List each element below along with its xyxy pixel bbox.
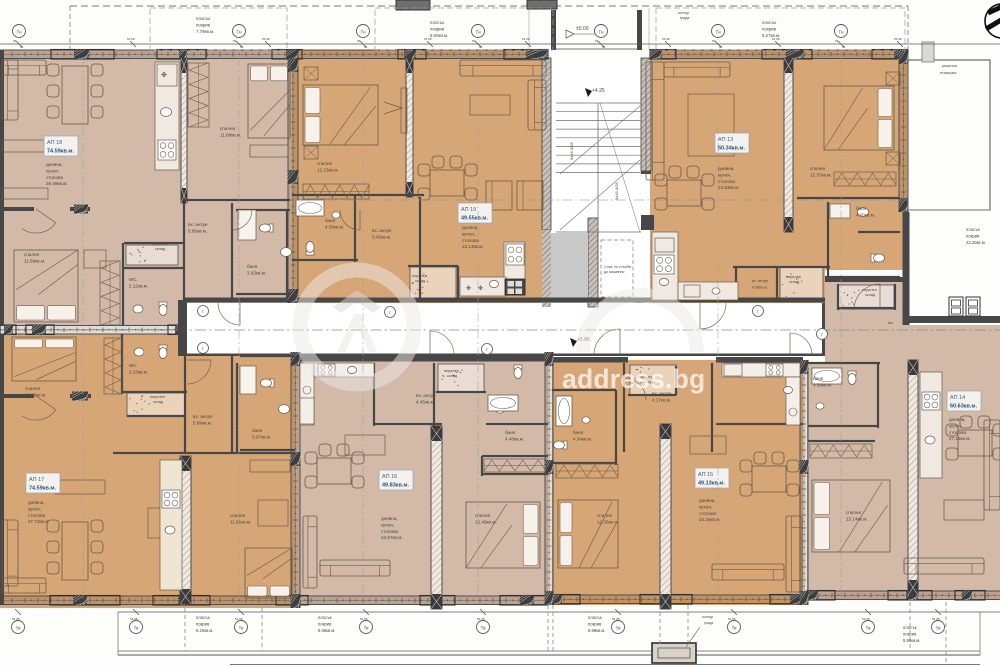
svg-text:склад: склад xyxy=(155,247,166,251)
svg-text:вх. антре: вх. антре xyxy=(372,228,392,233)
svg-text:53 98: 53 98 xyxy=(262,37,270,41)
svg-text:покрив: покрив xyxy=(430,26,445,31)
svg-text:столова: столова xyxy=(46,175,63,180)
svg-text:покрив: покрив xyxy=(588,621,602,626)
svg-text:вх. антре: вх. антре xyxy=(416,393,436,398)
svg-text:кухня,: кухня, xyxy=(699,504,712,509)
svg-text:дневна,: дневна, xyxy=(28,500,45,505)
svg-text:3.45кв.м.: 3.45кв.м. xyxy=(372,234,391,239)
svg-text:покрив: покрив xyxy=(196,621,210,626)
svg-text:✤: ✤ xyxy=(161,71,167,79)
svg-text:53 98: 53 98 xyxy=(424,37,432,41)
svg-text:Тн: Тн xyxy=(360,30,366,35)
svg-text:покрив: покрив xyxy=(762,26,777,31)
svg-text:11.56кв.м.: 11.56кв.м. xyxy=(25,392,46,397)
svg-text:24.93кв.м.: 24.93кв.м. xyxy=(718,185,740,190)
svg-text:баня: баня xyxy=(252,428,263,433)
svg-text:53 98: 53 98 xyxy=(127,37,135,41)
svg-text:53 98: 53 98 xyxy=(360,617,368,621)
svg-text:Тв: Тв xyxy=(936,626,941,631)
svg-text:Тв: Тв xyxy=(866,626,871,631)
svg-text:Тв: Тв xyxy=(239,626,244,631)
svg-text:53 98: 53 98 xyxy=(894,37,902,41)
svg-text:покрив: покрив xyxy=(318,621,332,626)
svg-text:49.83кв.м.: 49.83кв.м. xyxy=(382,483,409,489)
svg-text:плосък: плосък xyxy=(196,16,210,21)
svg-text:11.89кв.м.: 11.89кв.м. xyxy=(220,132,241,137)
svg-text:кухня,: кухня, xyxy=(46,168,59,173)
svg-text:града: града xyxy=(704,621,713,625)
svg-text:5.86кв.м.: 5.86кв.м. xyxy=(188,228,207,233)
svg-text:WC: WC xyxy=(129,277,137,282)
svg-text:Тв: Тв xyxy=(364,626,369,631)
svg-text:74.59кв.м.: 74.59кв.м. xyxy=(29,486,56,492)
svg-text:плосък: плосък xyxy=(196,615,210,620)
svg-text:дневна,: дневна, xyxy=(462,225,479,230)
svg-text:23.13кв.м.: 23.13кв.м. xyxy=(462,244,484,249)
svg-text:✤: ✤ xyxy=(478,285,483,292)
svg-text:АП 13: АП 13 xyxy=(718,137,733,143)
svg-text:склад: склад xyxy=(865,293,876,297)
svg-text:плосък: плосък xyxy=(430,20,444,25)
svg-text:4.36кв.м.: 4.36кв.м. xyxy=(752,285,768,289)
svg-text:9.00кв.м.: 9.00кв.м. xyxy=(430,33,448,38)
svg-text:перален: перален xyxy=(412,274,427,278)
svg-text:53 98: 53 98 xyxy=(612,617,620,621)
svg-text:перален: перален xyxy=(444,369,459,373)
svg-text:53 98: 53 98 xyxy=(235,617,243,621)
svg-text:Тв: Тв xyxy=(134,626,139,631)
svg-text:плосък: плосък xyxy=(318,615,332,620)
svg-text:перален: перален xyxy=(150,395,165,399)
svg-text:плосък: плосък xyxy=(762,20,776,25)
svg-text:кухня,: кухня, xyxy=(949,423,962,428)
svg-text:баня: баня xyxy=(813,376,824,381)
svg-text:перален: перален xyxy=(786,275,801,279)
svg-text:решетка: решетка xyxy=(942,64,958,68)
svg-text:дневна,: дневна, xyxy=(46,162,63,167)
svg-text:Тв: Тв xyxy=(16,626,21,631)
svg-text:wc: wc xyxy=(888,320,893,325)
svg-text:столова: столова xyxy=(28,513,45,518)
svg-text:столова: столова xyxy=(381,529,398,534)
svg-text:контур: контур xyxy=(678,11,689,15)
svg-text:склад: склад xyxy=(447,374,458,378)
svg-text:98: 98 xyxy=(602,45,606,49)
svg-text:Тн: Тн xyxy=(16,30,22,35)
svg-text:13.14кв.м.: 13.14кв.м. xyxy=(846,516,868,521)
svg-text:49.13кв.м.: 49.13кв.м. xyxy=(698,481,725,487)
svg-text:74.59кв.м.: 74.59кв.м. xyxy=(47,149,74,155)
svg-text:спалня: спалня xyxy=(24,252,40,257)
svg-text:АП 16: АП 16 xyxy=(382,474,397,480)
svg-text:6.25кв.м.: 6.25кв.м. xyxy=(196,628,213,633)
svg-text:24.57кв.м.: 24.57кв.м. xyxy=(381,535,403,540)
svg-text:98: 98 xyxy=(364,45,368,49)
svg-text:спалня: спалня xyxy=(25,386,41,391)
svg-text:столова: столова xyxy=(699,511,716,516)
svg-text:53: 53 xyxy=(357,39,361,43)
svg-text:98: 98 xyxy=(479,45,483,49)
svg-text:покрив: покрив xyxy=(196,22,211,27)
svg-text:АП 15: АП 15 xyxy=(698,472,713,478)
svg-text:Тн: Тн xyxy=(838,30,844,35)
svg-text:кухня,: кухня, xyxy=(718,172,731,177)
svg-text:50.34кв.м.: 50.34кв.м. xyxy=(718,146,745,152)
svg-text:града: града xyxy=(680,16,689,20)
svg-text:спалня: спалня xyxy=(230,513,246,518)
svg-text:5.99кв.м.: 5.99кв.м. xyxy=(193,420,212,425)
svg-text:дневна,: дневна, xyxy=(949,417,966,422)
svg-text:53: 53 xyxy=(712,39,716,43)
svg-text:спалня: спалня xyxy=(846,510,862,515)
svg-text:вх. антре: вх. антре xyxy=(752,279,768,283)
svg-text:4.03кв.м.: 4.03кв.м. xyxy=(856,212,875,217)
svg-text:Тв: Тв xyxy=(481,626,486,631)
svg-text:баня: баня xyxy=(856,206,867,211)
svg-text:✤: ✤ xyxy=(466,285,471,292)
svg-text:столова: столова xyxy=(462,238,479,243)
svg-text:12.36кв.м.: 12.36кв.м. xyxy=(597,519,619,524)
svg-text:4.48кв.м.: 4.48кв.м. xyxy=(505,436,524,441)
svg-text:53 98: 53 98 xyxy=(130,617,138,621)
svg-text:12.23кв.м.: 12.23кв.м. xyxy=(317,167,339,172)
svg-text:98: 98 xyxy=(240,45,244,49)
svg-text:98: 98 xyxy=(842,45,846,49)
svg-text:вх. антре: вх. антре xyxy=(193,414,213,419)
svg-text:АП 18: АП 18 xyxy=(47,140,62,146)
svg-text:вх. антре: вх. антре xyxy=(188,222,208,227)
svg-text:9x16.4/28: 9x16.4/28 xyxy=(569,142,574,160)
svg-text:спалня: спалня xyxy=(317,161,333,166)
svg-text:3.93кв.м.: 3.93кв.м. xyxy=(247,270,266,275)
svg-text:баня: баня xyxy=(325,218,336,223)
svg-text:плосък: плосък xyxy=(966,227,980,232)
svg-text:24.25кв.м.: 24.25кв.м. xyxy=(699,517,721,522)
svg-text:етажерка: етажерка xyxy=(940,71,957,75)
svg-text:Тв: Тв xyxy=(732,626,737,631)
svg-text:53 98: 53 98 xyxy=(862,617,870,621)
svg-text:49.55кв.м.: 49.55кв.м. xyxy=(461,216,488,222)
svg-text:Тн: Тн xyxy=(236,30,242,35)
svg-text:кухня,: кухня, xyxy=(462,231,475,236)
svg-text:дневна,: дневна, xyxy=(699,498,716,503)
svg-text:7.79кв.м.: 7.79кв.м. xyxy=(196,29,214,34)
svg-text:склад: склад xyxy=(415,279,426,283)
svg-text:8.98кв.м.: 8.98кв.м. xyxy=(588,628,605,633)
svg-text:Тн: Тн xyxy=(715,30,721,35)
svg-text:3.56кв.м.: 3.56кв.м. xyxy=(813,382,832,387)
svg-text:Тв: Тв xyxy=(616,626,621,631)
svg-text:9x16.4/28: 9x16.4/28 xyxy=(614,182,619,200)
svg-text:4.45кв.м.: 4.45кв.м. xyxy=(416,399,435,404)
svg-text:53: 53 xyxy=(595,39,599,43)
svg-text:53 98: 53 98 xyxy=(772,37,780,41)
svg-text:53 98: 53 98 xyxy=(728,617,736,621)
svg-text:53 98: 53 98 xyxy=(932,617,940,621)
svg-text:4.09кв.м.: 4.09кв.м. xyxy=(325,224,344,229)
svg-text:5.95кв.м.: 5.95кв.м. xyxy=(903,638,920,643)
svg-text:27.73кв.м.: 27.73кв.м. xyxy=(28,519,50,524)
svg-text:4.34кв.м.: 4.34кв.м. xyxy=(573,436,592,441)
svg-text:АП 14: АП 14 xyxy=(950,395,965,401)
svg-text:12.37кв.м.: 12.37кв.м. xyxy=(810,172,832,177)
svg-text:WC: WC xyxy=(129,363,137,368)
svg-text:баня: баня xyxy=(505,430,516,435)
svg-text:дневна,: дневна, xyxy=(381,516,398,521)
svg-text:±0.00: ±0.00 xyxy=(576,26,589,32)
svg-text:98: 98 xyxy=(719,45,723,49)
svg-text:11.69кв.м.: 11.69кв.м. xyxy=(24,258,45,263)
svg-text:53 98: 53 98 xyxy=(662,37,670,41)
svg-text:4.17кв.м.: 4.17кв.м. xyxy=(652,397,671,402)
svg-text:склад: склад xyxy=(153,400,164,404)
svg-text:22.20кв.м.: 22.20кв.м. xyxy=(966,240,986,245)
svg-text:перален: перален xyxy=(862,288,877,292)
svg-text:11.91кв.м.: 11.91кв.м. xyxy=(230,519,251,524)
svg-text:Слиз. по стълба: Слиз. по стълба xyxy=(604,265,631,269)
svg-text:53 98: 53 98 xyxy=(12,617,20,621)
svg-text:перален: перален xyxy=(152,242,167,246)
svg-text:98: 98 xyxy=(20,45,24,49)
svg-text:27.15кв.м.: 27.15кв.м. xyxy=(949,436,971,441)
svg-text:кухня,: кухня, xyxy=(28,506,41,511)
svg-text:столова: столова xyxy=(718,179,735,184)
svg-text:покрив: покрив xyxy=(966,233,980,238)
svg-text:60.63кв.м.: 60.63кв.м. xyxy=(950,404,977,410)
svg-text:плосък: плосък xyxy=(588,615,602,620)
svg-text:дневна,: дневна, xyxy=(718,166,735,171)
svg-text:склад: склад xyxy=(789,280,800,284)
svg-text:8.98кв.м.: 8.98кв.м. xyxy=(318,628,335,633)
svg-text:спалня: спалня xyxy=(810,166,826,171)
svg-text:АП 17: АП 17 xyxy=(29,477,44,483)
svg-text:контур: контур xyxy=(702,615,713,619)
svg-text:спалня: спалня xyxy=(220,126,236,131)
svg-text:АП 19: АП 19 xyxy=(461,207,476,213)
svg-text:Тн: Тн xyxy=(475,30,481,35)
svg-text:address.bg: address.bg xyxy=(562,364,705,394)
svg-text:спалня: спалня xyxy=(475,513,491,518)
svg-text:3.97кв.м.: 3.97кв.м. xyxy=(252,434,271,439)
svg-text:12.49кв.м.: 12.49кв.м. xyxy=(475,519,497,524)
svg-text:53: 53 xyxy=(13,39,17,43)
svg-text:баня: баня xyxy=(247,264,258,269)
svg-text:баня: баня xyxy=(573,430,584,435)
svg-text:28.49кв.м.: 28.49кв.м. xyxy=(46,181,68,186)
svg-text:53 98: 53 98 xyxy=(477,617,485,621)
svg-text:53: 53 xyxy=(835,39,839,43)
svg-text:53: 53 xyxy=(472,39,476,43)
svg-text:Тн: Тн xyxy=(598,30,604,35)
svg-text:до машинно: до машинно xyxy=(604,270,624,274)
svg-text:столова: столова xyxy=(949,430,966,435)
svg-text:53 98: 53 98 xyxy=(522,37,530,41)
svg-text:2.12кв.м.: 2.12кв.м. xyxy=(129,283,148,288)
svg-text:спалня: спалня xyxy=(597,513,613,518)
svg-text:53: 53 xyxy=(233,39,237,43)
svg-text:кухня,: кухня, xyxy=(381,522,394,527)
svg-text:2.23кв.м.: 2.23кв.м. xyxy=(129,369,148,374)
svg-text:+4.25: +4.25 xyxy=(592,88,605,94)
